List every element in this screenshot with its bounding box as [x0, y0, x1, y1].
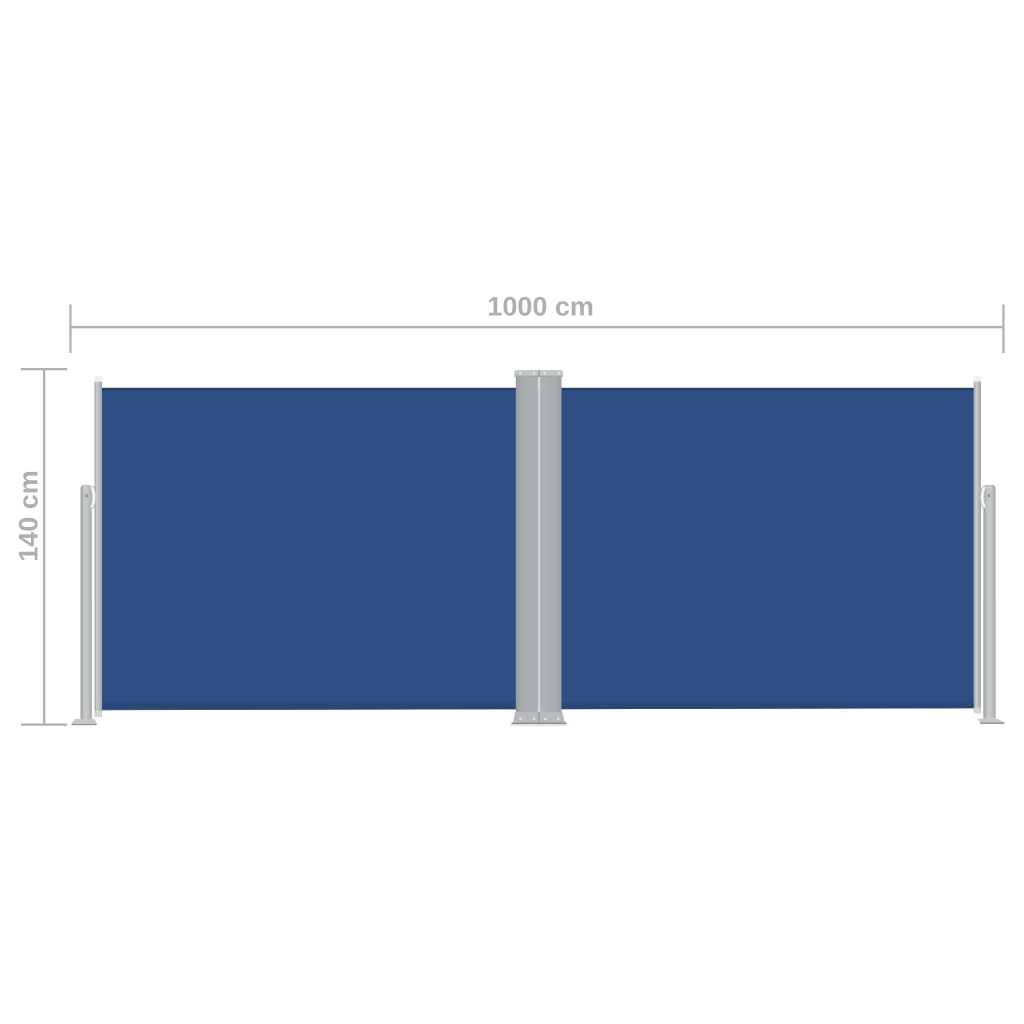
svg-text:1000 cm: 1000 cm	[487, 292, 594, 322]
svg-text:140 cm: 140 cm	[14, 470, 44, 562]
